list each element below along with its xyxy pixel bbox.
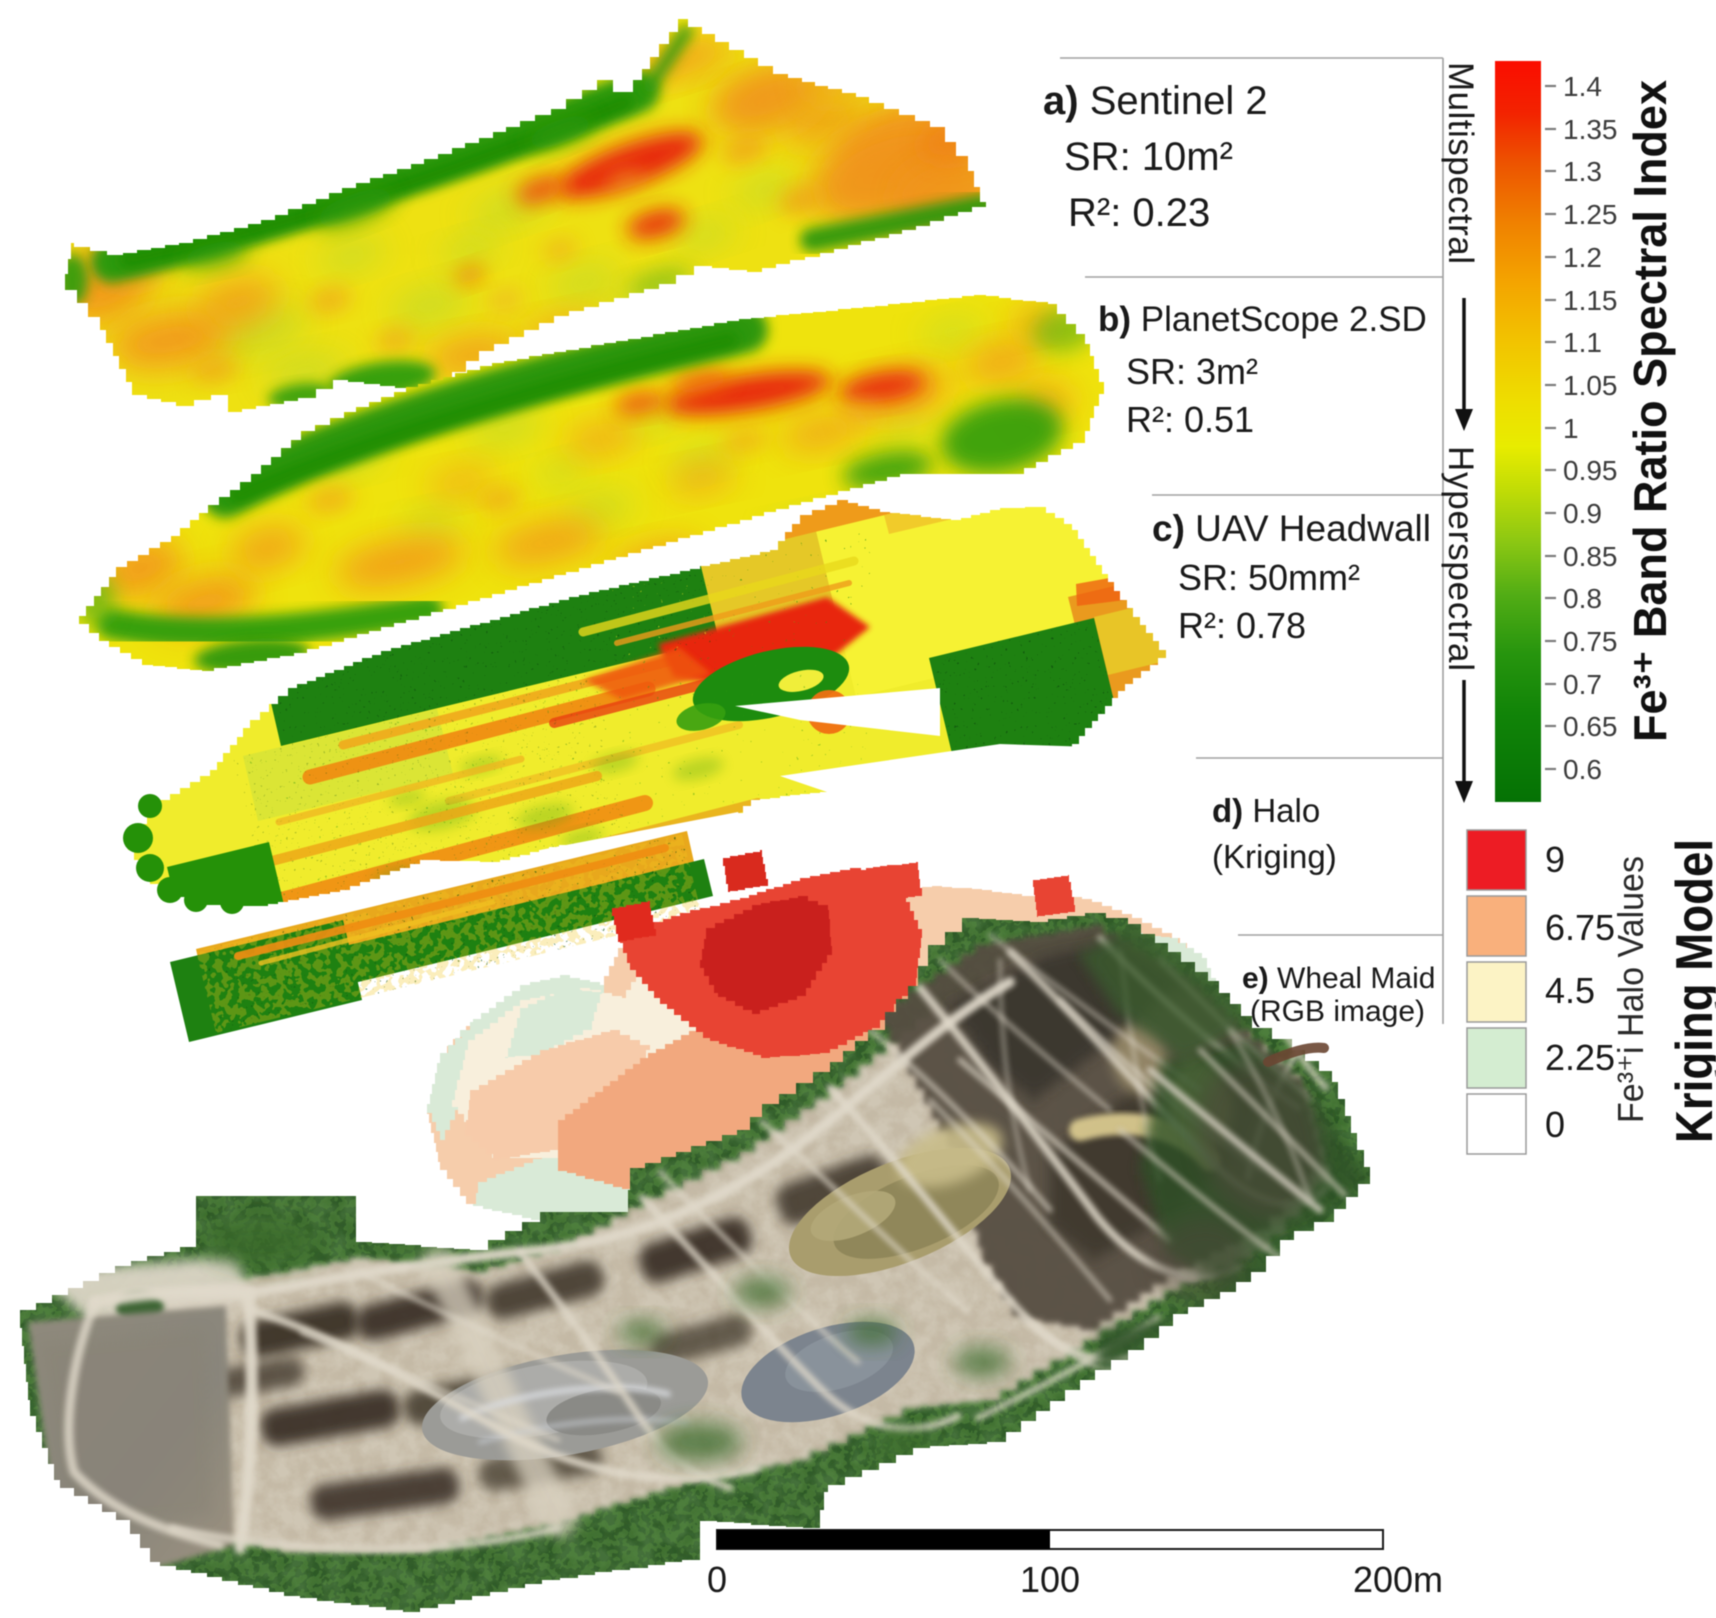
svg-text:SR: 3m²: SR: 3m² [1126,351,1258,392]
svg-text:R²: 0.78: R²: 0.78 [1178,605,1306,646]
svg-text:R²: 0.51: R²: 0.51 [1126,399,1254,440]
svg-text:(Kriging): (Kriging) [1212,838,1337,875]
svg-text:Hyperspectral: Hyperspectral [1441,446,1480,671]
svg-text:0.85: 0.85 [1563,541,1618,572]
svg-text:9: 9 [1545,839,1565,880]
svg-text:0: 0 [1545,1104,1565,1145]
svg-text:a) Sentinel 2: a) Sentinel 2 [1043,79,1268,123]
svg-text:200m: 200m [1353,1559,1443,1600]
svg-text:1: 1 [1563,413,1579,444]
svg-text:Fe³⁺ Band Ratio Spectral Index: Fe³⁺ Band Ratio Spectral Index [1624,80,1676,742]
svg-text:0.7: 0.7 [1563,669,1602,700]
svg-text:Fe³⁺i Halo Values: Fe³⁺i Halo Values [1610,856,1651,1123]
svg-text:1.2: 1.2 [1563,242,1602,273]
svg-text:1.05: 1.05 [1563,370,1618,401]
svg-text:SR: 50mm²: SR: 50mm² [1178,557,1360,598]
svg-text:1.35: 1.35 [1563,114,1618,145]
svg-text:0.6: 0.6 [1563,754,1602,785]
svg-text:0.9: 0.9 [1563,498,1602,529]
svg-text:Kriging Model: Kriging Model [1666,839,1716,1143]
svg-text:0.65: 0.65 [1563,711,1618,742]
svg-text:0.95: 0.95 [1563,455,1618,486]
svg-text:e) Wheal Maid: e) Wheal Maid [1242,962,1435,995]
svg-text:0: 0 [707,1559,727,1600]
svg-text:SR: 10m²: SR: 10m² [1064,135,1233,179]
svg-text:1.4: 1.4 [1563,71,1602,102]
svg-text:0.75: 0.75 [1563,626,1618,657]
svg-text:b) PlanetScope 2.SD: b) PlanetScope 2.SD [1098,300,1427,339]
svg-text:Multispectral: Multispectral [1441,62,1480,264]
svg-text:4.5: 4.5 [1545,970,1595,1011]
svg-text:2.25: 2.25 [1545,1037,1615,1078]
svg-text:R²: 0.23: R²: 0.23 [1068,191,1210,235]
svg-text:1.15: 1.15 [1563,285,1618,316]
svg-text:(RGB image): (RGB image) [1250,995,1425,1028]
svg-text:d) Halo: d) Halo [1212,792,1320,829]
svg-text:1.1: 1.1 [1563,327,1602,358]
svg-text:0.8: 0.8 [1563,583,1602,614]
svg-text:6.75: 6.75 [1545,907,1615,948]
svg-text:c) UAV Headwall: c) UAV Headwall [1152,508,1431,549]
svg-text:1.25: 1.25 [1563,199,1618,230]
svg-text:100: 100 [1020,1559,1080,1600]
svg-text:1.3: 1.3 [1563,156,1602,187]
